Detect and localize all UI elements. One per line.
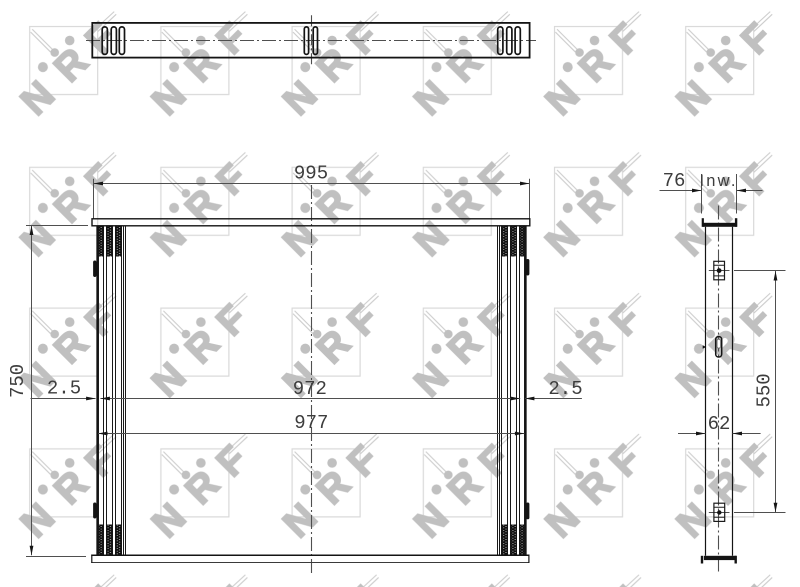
svg-text:977: 977 (294, 412, 328, 434)
svg-text:2.5: 2.5 (548, 378, 582, 400)
svg-text:Inw.: Inw. (700, 172, 738, 190)
svg-text:76: 76 (663, 170, 686, 192)
svg-text:750: 750 (7, 364, 29, 398)
svg-text:995: 995 (294, 163, 328, 185)
svg-text:62: 62 (708, 413, 731, 435)
svg-text:550: 550 (753, 373, 775, 407)
svg-text:972: 972 (293, 378, 327, 400)
svg-text:2.5: 2.5 (47, 378, 81, 400)
